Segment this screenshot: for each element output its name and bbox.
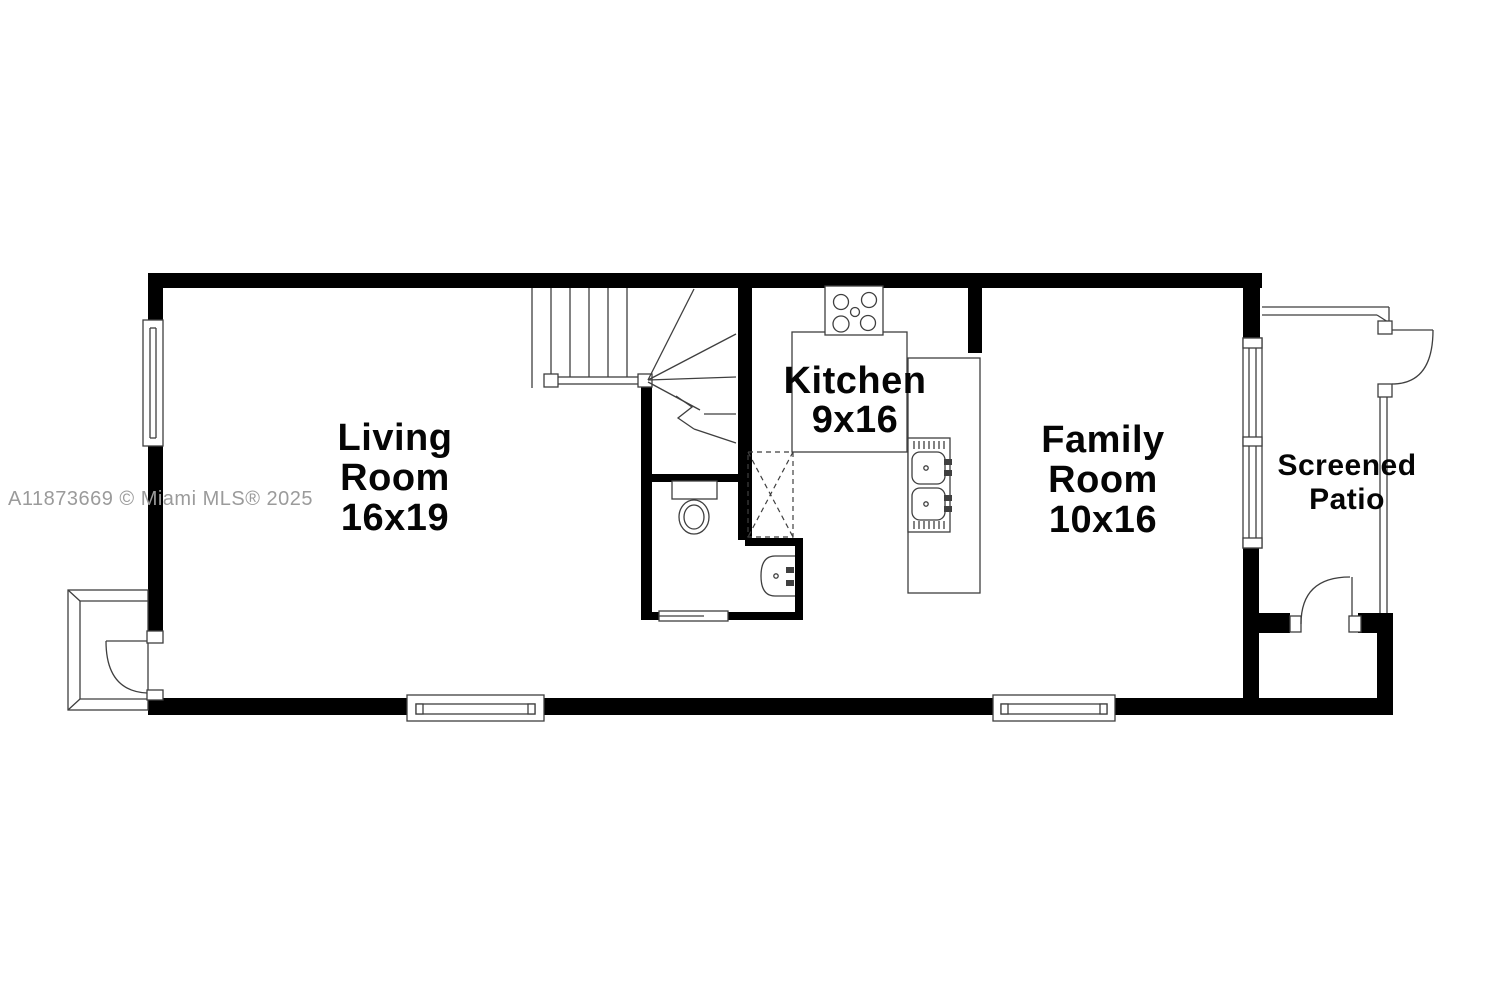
patio-enclosure-door	[1290, 577, 1361, 632]
screen-door-swing	[1392, 330, 1433, 384]
living-room-label: Living Room 16x19	[275, 418, 515, 538]
stove	[825, 286, 883, 335]
toilet	[672, 481, 717, 534]
stair-break-line	[676, 396, 694, 429]
kitchen-label: Kitchen 9x16	[755, 362, 955, 440]
living-room-name-line1: Living	[275, 418, 515, 458]
screened-patio-name-line2: Patio	[1257, 483, 1437, 517]
window-living-south	[407, 695, 544, 721]
pedestal-sink	[761, 556, 795, 596]
patio-screen-door	[1378, 321, 1433, 397]
enclosure-door-swing	[1301, 577, 1350, 624]
stairs	[532, 288, 736, 443]
floorplan-canvas: Living Room 16x19 Kitchen 9x16 Family Ro…	[0, 0, 1500, 1000]
bath-door-opening	[659, 611, 728, 621]
mls-watermark: A11873669 © Miami MLS® 2025	[8, 488, 313, 511]
stair-newel-post	[544, 374, 558, 387]
island-double-sink	[908, 438, 952, 532]
window-left	[143, 320, 163, 446]
screened-patio-name-line1: Screened	[1257, 449, 1437, 483]
screened-patio-label: Screened Patio	[1257, 449, 1437, 517]
kitchen-dimensions: 9x16	[755, 401, 955, 440]
family-room-dimensions: 10x16	[1000, 500, 1206, 540]
family-room-name-line2: Room	[1000, 460, 1206, 500]
window-family-south	[993, 695, 1115, 721]
kitchen-name: Kitchen	[755, 362, 955, 401]
closet-dashed	[748, 452, 793, 537]
family-room-name-line1: Family	[1000, 420, 1206, 460]
stair-railing	[548, 377, 650, 384]
family-room-label: Family Room 10x16	[1000, 420, 1206, 540]
